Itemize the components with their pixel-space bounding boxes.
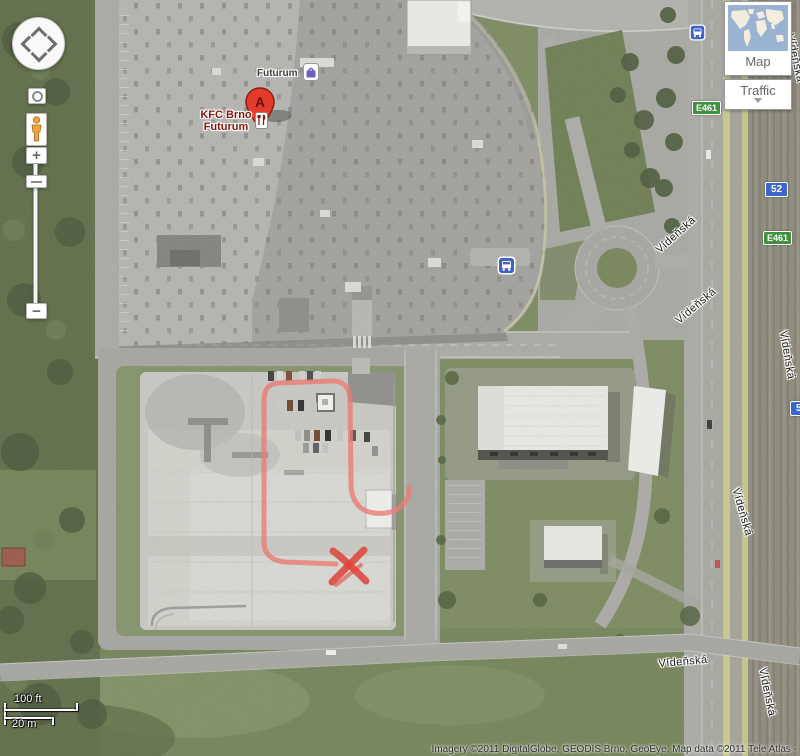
poi-label-futurum[interactable]: Futurum <box>257 68 298 79</box>
traffic-label: Traffic <box>725 80 791 98</box>
kfc-label-line2: Futurum <box>193 121 259 133</box>
traffic-button[interactable]: Traffic <box>724 79 792 110</box>
map-view-button[interactable]: Map <box>724 1 792 76</box>
satellite-imagery <box>0 0 800 756</box>
map-view-label: Map <box>725 52 791 75</box>
pan-control[interactable] <box>12 17 65 70</box>
pegman-button[interactable] <box>26 113 47 146</box>
zoom-handle-grip <box>31 181 42 183</box>
scale-imperial: 100 ft <box>14 693 42 705</box>
scale-metric: 20 m <box>12 718 36 730</box>
zoom-in-button[interactable]: + <box>26 147 47 164</box>
chevron-down-icon <box>754 98 762 103</box>
google-maps-viewport: A KFC Brno Futurum Futurum Vídeňská Víde… <box>0 0 800 756</box>
marker-letter: A <box>255 94 265 110</box>
pegman-icon <box>29 116 44 143</box>
restaurant-icon[interactable] <box>255 112 268 129</box>
copyright-attribution: Imagery ©2011 DigitalGlobe, GEODIS Brno,… <box>432 744 797 755</box>
scale-bar: 100 ft 20 m <box>4 693 94 733</box>
transit-stop-icon[interactable] <box>689 24 706 41</box>
shopping-bag-icon[interactable] <box>303 63 319 81</box>
kfc-label-line1: KFC Brno <box>193 109 259 121</box>
route-badge-e461: E461 <box>763 231 792 245</box>
map-canvas[interactable] <box>0 0 800 756</box>
route-badge-52: 52 <box>765 182 788 197</box>
poi-label-kfc[interactable]: KFC Brno Futurum <box>193 109 259 133</box>
route-badge-e461: E461 <box>692 101 721 115</box>
world-map-thumbnail <box>728 5 788 51</box>
route-badge-52: 52 <box>790 401 800 416</box>
transit-stop-icon[interactable] <box>497 256 516 275</box>
recenter-button[interactable] <box>28 88 46 104</box>
zoom-out-button[interactable]: − <box>26 303 47 319</box>
recenter-icon <box>32 91 43 102</box>
zoom-slider-handle[interactable] <box>26 175 47 188</box>
